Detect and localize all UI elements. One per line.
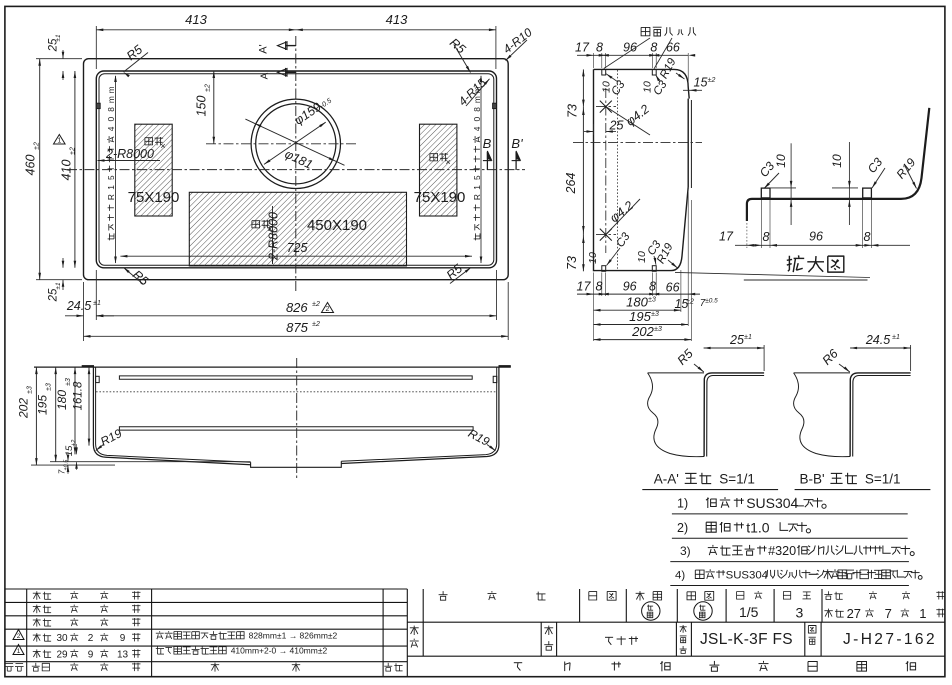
svg-text:25: 25 [729, 333, 744, 347]
svg-text:SUS304: SUS304 [726, 570, 768, 582]
svg-text:202: 202 [17, 398, 31, 419]
svg-text:±0.5: ±0.5 [64, 459, 70, 471]
svg-text:3: 3 [796, 605, 804, 621]
svg-text:A': A' [258, 44, 270, 53]
svg-text:9: 9 [120, 633, 126, 644]
svg-text:B: B [483, 136, 492, 151]
svg-text:±3: ±3 [27, 386, 34, 394]
svg-text:4: 4 [106, 126, 116, 131]
svg-text:±3: ±3 [648, 297, 656, 304]
svg-text:96: 96 [623, 280, 637, 294]
svg-text:1: 1 [17, 648, 21, 655]
svg-text:m: m [472, 86, 482, 93]
svg-text:8: 8 [650, 41, 657, 55]
svg-text:202: 202 [631, 324, 654, 339]
svg-text:4): 4) [675, 570, 685, 582]
svg-text:73: 73 [566, 104, 580, 118]
svg-text:t1.0: t1.0 [746, 520, 770, 536]
svg-text:±2: ±2 [70, 147, 77, 155]
svg-text:10: 10 [774, 154, 788, 168]
svg-text:5: 5 [472, 175, 482, 180]
svg-text:75X190: 75X190 [414, 189, 466, 206]
svg-text:B-B': B-B' [800, 471, 825, 486]
svg-text:450X190: 450X190 [307, 217, 367, 234]
svg-text:m: m [106, 96, 116, 103]
svg-text:17: 17 [577, 280, 592, 294]
svg-text:460: 460 [24, 155, 38, 176]
svg-text:150: 150 [195, 96, 209, 117]
svg-text:826: 826 [286, 300, 308, 315]
svg-text:10: 10 [601, 81, 613, 93]
svg-text:±2: ±2 [72, 439, 78, 446]
svg-text:2-R8000: 2-R8000 [267, 212, 281, 261]
svg-text:±2: ±2 [312, 301, 320, 308]
svg-text:2: 2 [326, 306, 330, 313]
svg-text:JSL-K-3F FS: JSL-K-3F FS [700, 631, 793, 648]
svg-text:180: 180 [55, 390, 69, 410]
svg-text:±3: ±3 [654, 326, 662, 333]
svg-text:5: 5 [106, 175, 116, 180]
svg-text:×: × [267, 224, 272, 234]
svg-text:13: 13 [117, 649, 129, 660]
svg-text:×: × [160, 141, 165, 151]
svg-text:410mm+2-0 → 410mm±2: 410mm+2-0 → 410mm±2 [231, 646, 328, 656]
svg-text:8: 8 [106, 107, 116, 112]
svg-text:1: 1 [919, 606, 926, 621]
svg-text:180: 180 [626, 295, 648, 310]
svg-text:1/5: 1/5 [739, 604, 759, 620]
svg-text:±1: ±1 [892, 334, 900, 341]
svg-text:7: 7 [885, 606, 892, 621]
svg-text:#320: #320 [768, 544, 796, 558]
svg-text:m: m [472, 96, 482, 103]
svg-text:0: 0 [472, 116, 482, 121]
svg-text:2: 2 [17, 633, 21, 640]
svg-text:17: 17 [719, 230, 734, 244]
svg-text:15: 15 [694, 76, 708, 90]
svg-text:±0.5: ±0.5 [705, 298, 718, 305]
svg-text:±2: ±2 [708, 77, 716, 84]
svg-text:66: 66 [666, 281, 680, 295]
svg-text:A: A [260, 72, 271, 79]
svg-text:±2: ±2 [312, 321, 320, 328]
svg-text:±1: ±1 [93, 300, 101, 307]
svg-text:413: 413 [386, 12, 408, 27]
svg-text:1: 1 [472, 185, 482, 190]
svg-text:10: 10 [830, 154, 844, 168]
svg-text:3): 3) [680, 544, 691, 558]
svg-text:828mm±1 → 826mm±2: 828mm±1 → 826mm±2 [249, 631, 338, 641]
svg-text:S=1/1: S=1/1 [865, 471, 901, 486]
svg-text:±1: ±1 [55, 34, 62, 42]
svg-text:29: 29 [56, 649, 68, 660]
svg-text:±3: ±3 [65, 378, 72, 386]
svg-text:75X190: 75X190 [128, 189, 180, 206]
svg-text:30: 30 [56, 633, 68, 644]
svg-text:24.5: 24.5 [865, 333, 890, 347]
svg-text:410: 410 [60, 160, 74, 181]
svg-text:96: 96 [809, 230, 823, 244]
svg-text:8: 8 [596, 280, 603, 294]
svg-text:±1: ±1 [744, 334, 752, 341]
svg-text:S=1/1: S=1/1 [719, 471, 755, 486]
svg-text:195: 195 [629, 309, 651, 324]
svg-text:J-H27-162: J-H27-162 [843, 631, 937, 648]
svg-text:1): 1) [677, 497, 688, 511]
svg-text:SUS304: SUS304 [746, 495, 798, 511]
svg-text:725: 725 [287, 241, 308, 255]
svg-text:2: 2 [88, 633, 94, 644]
svg-text:R: R [472, 194, 482, 200]
svg-text:B': B' [511, 136, 523, 151]
svg-text:17: 17 [575, 41, 590, 55]
svg-text:±2: ±2 [686, 299, 694, 306]
svg-text:195: 195 [36, 395, 50, 415]
svg-text:m: m [106, 86, 116, 93]
svg-text:4: 4 [472, 126, 482, 131]
svg-text:264: 264 [564, 173, 578, 195]
svg-text:1: 1 [106, 185, 116, 190]
svg-text:±1: ±1 [55, 282, 62, 290]
svg-text:×: × [445, 157, 450, 167]
svg-text:73: 73 [565, 256, 579, 270]
svg-text:27: 27 [847, 606, 861, 621]
svg-text:161.8: 161.8 [73, 381, 85, 410]
svg-text:±2: ±2 [205, 84, 212, 92]
svg-text:1: 1 [57, 138, 61, 145]
svg-text:R: R [106, 194, 116, 200]
svg-text:0: 0 [106, 116, 116, 121]
svg-text:10: 10 [642, 81, 654, 93]
svg-text:2): 2) [677, 521, 688, 535]
svg-text:875: 875 [286, 320, 308, 335]
svg-text:±2: ±2 [34, 142, 41, 150]
svg-text:10: 10 [587, 252, 599, 264]
svg-text:±3: ±3 [651, 311, 659, 318]
svg-text:±3: ±3 [46, 383, 53, 391]
svg-text:A-A': A-A' [654, 471, 679, 486]
svg-text:9: 9 [88, 649, 94, 660]
svg-text:25: 25 [609, 119, 624, 133]
svg-text:8: 8 [864, 230, 871, 244]
svg-text:8: 8 [472, 107, 482, 112]
svg-text:413: 413 [185, 12, 207, 27]
svg-text:66: 66 [666, 41, 680, 55]
svg-text:8: 8 [596, 41, 603, 55]
svg-text:8: 8 [763, 230, 770, 244]
svg-text:8: 8 [649, 280, 656, 294]
svg-text:24.5: 24.5 [66, 299, 91, 313]
svg-text:10: 10 [636, 251, 648, 263]
